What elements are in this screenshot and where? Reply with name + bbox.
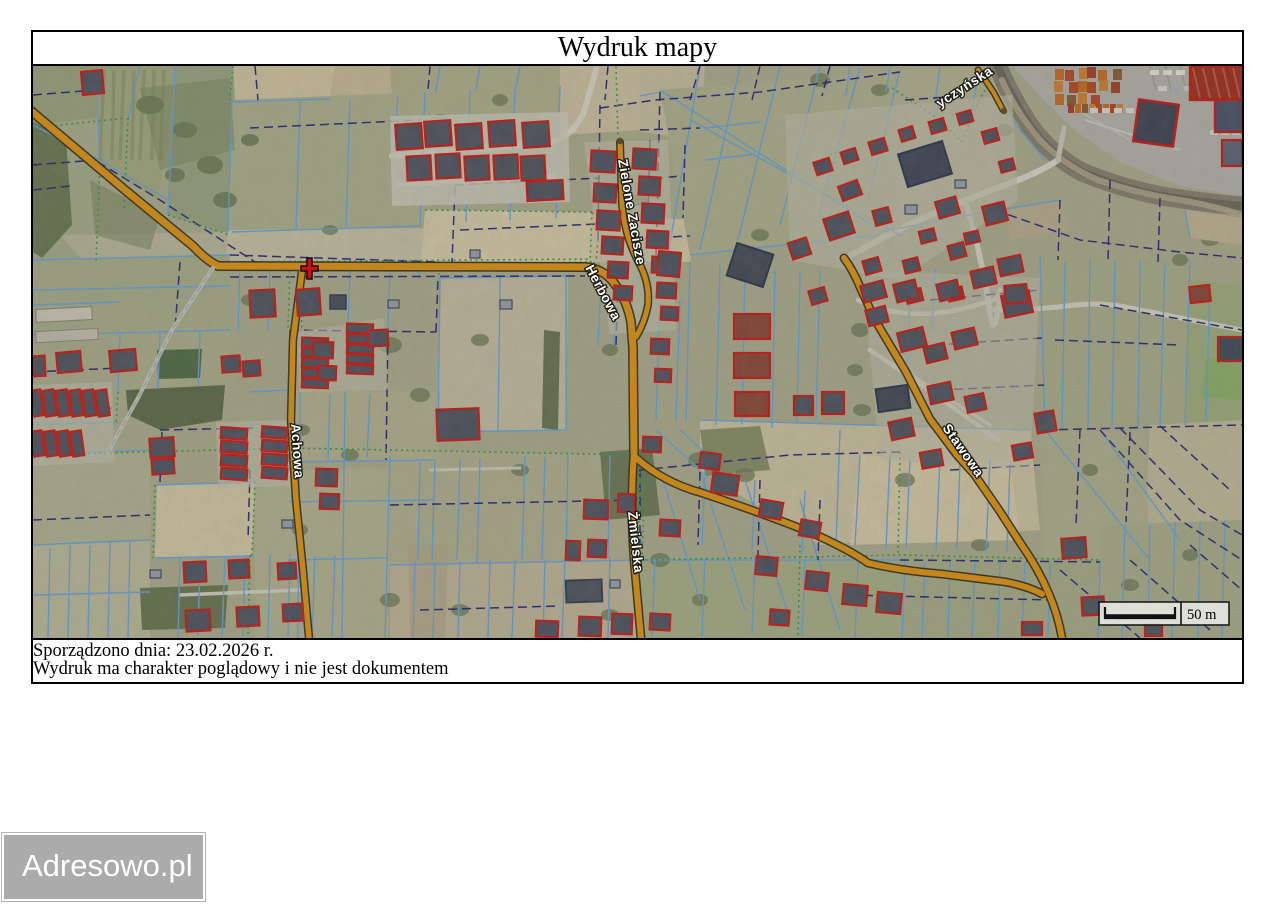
svg-text:50 m: 50 m (1187, 607, 1217, 623)
